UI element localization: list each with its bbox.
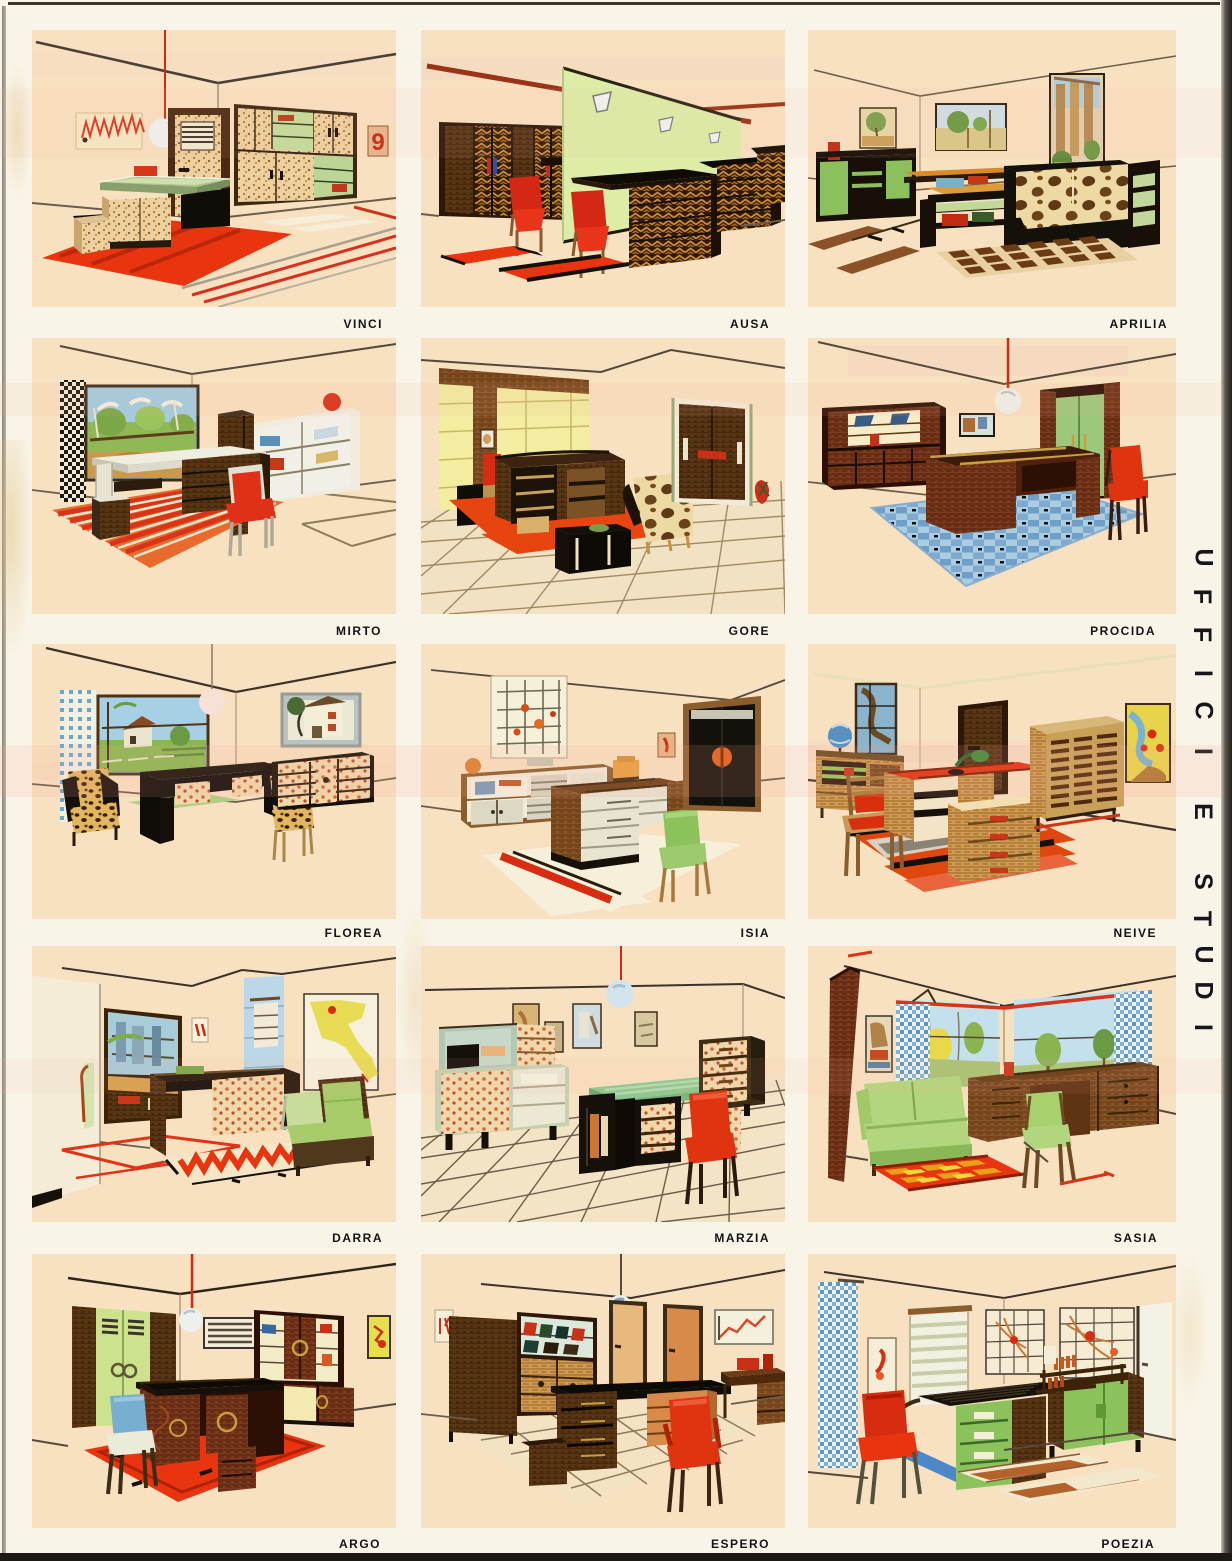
svg-text:9: 9 (371, 129, 384, 156)
